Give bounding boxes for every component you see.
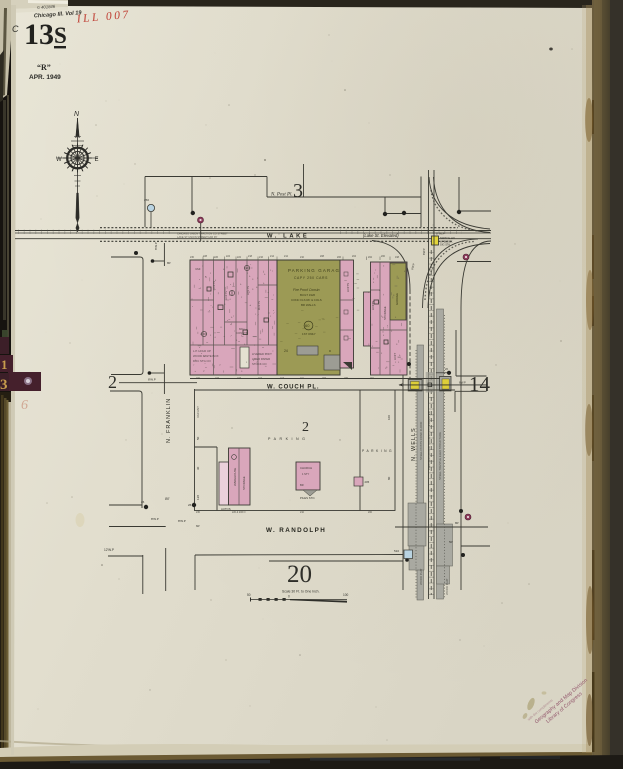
svg-text:206: 206	[337, 256, 342, 259]
svg-text:1ST ONLY: 1ST ONLY	[302, 332, 316, 336]
svg-text:2: 2	[302, 420, 309, 435]
svg-text:100: 100	[387, 415, 391, 420]
svg-text:Scale 30 Ft. to One Inch.: Scale 30 Ft. to One Inch.	[282, 590, 320, 594]
svg-text:216: 216	[259, 256, 264, 259]
svg-text:26: 26	[141, 500, 145, 504]
svg-text:8'W.P: 8'W.P	[151, 517, 159, 521]
svg-text:PARKING: PARKING	[268, 437, 308, 441]
svg-text:8'W.P: 8'W.P	[459, 381, 466, 385]
svg-text:14: 14	[469, 372, 491, 396]
svg-text:Fire Proof Constn: Fire Proof Constn	[293, 288, 320, 292]
svg-text:80': 80'	[167, 261, 171, 265]
svg-text:8'W.P: 8'W.P	[154, 242, 158, 250]
svg-text:220 & 206 N: 220 & 206 N	[232, 511, 246, 514]
svg-text:224: 224	[226, 255, 231, 258]
svg-text:204: 204	[352, 255, 357, 258]
svg-text:202: 202	[368, 256, 373, 259]
svg-text:8'W.P: 8'W.P	[178, 519, 186, 523]
svg-text:218: 218	[248, 255, 253, 258]
svg-text:BUILT 1926: BUILT 1926	[300, 293, 316, 297]
svg-text:WOOD PASTE BOX: WOOD PASTE BOX	[193, 354, 219, 358]
svg-text:198: 198	[395, 256, 400, 259]
svg-text:8'W.P: 8'W.P	[148, 378, 156, 382]
svg-text:WOOD PLAT: WOOD PLAT	[445, 578, 449, 595]
svg-text:STOCK CO: STOCK CO	[252, 362, 267, 366]
svg-text:24: 24	[284, 349, 288, 353]
svg-text:60': 60'	[196, 524, 200, 528]
svg-text:2: 2	[108, 372, 117, 392]
svg-text:CONC FLS RF & COLS: CONC FLS RF & COLS	[291, 298, 322, 302]
svg-text:8'W.P: 8'W.P	[422, 248, 426, 255]
svg-text:0: 0	[288, 595, 290, 599]
svg-text:STORAGE: STORAGE	[242, 476, 246, 490]
svg-text:80: 80	[387, 476, 391, 480]
svg-text:200: 200	[381, 255, 386, 258]
svg-text:APR. 1949: APR. 1949	[29, 74, 61, 81]
svg-text:BR: BR	[300, 483, 304, 487]
svg-text:230: 230	[196, 511, 201, 514]
svg-text:12'W.P: 12'W.P	[104, 548, 114, 552]
svg-text:PARKING: PARKING	[362, 449, 394, 453]
svg-text:230: 230	[190, 256, 195, 259]
svg-text:W. RANDOLPH: W. RANDOLPH	[266, 527, 326, 534]
svg-text:N. Post Pl.: N. Post Pl.	[270, 193, 293, 198]
svg-text:3: 3	[0, 377, 8, 393]
svg-text:205: 205	[365, 480, 370, 484]
svg-text:SIG STA: SIG STA	[440, 243, 450, 247]
svg-text:N. FRANKLIN: N. FRANKLIN	[166, 398, 172, 443]
svg-text:200: 200	[368, 511, 373, 514]
svg-text:1 STY: 1 STY	[302, 472, 309, 476]
svg-text:60: 60	[305, 323, 310, 328]
svg-text:STEEL POSTS CONC FLOOR: STEEL POSTS CONC FLOOR	[419, 422, 423, 460]
svg-text:LOFTS: LOFTS	[224, 291, 228, 300]
svg-text:WOOD PLAT: WOOD PLAT	[419, 568, 423, 585]
svg-text:510: 510	[394, 549, 399, 553]
svg-text:AUTOS: AUTOS	[221, 507, 231, 511]
svg-text:C: C	[12, 24, 19, 34]
svg-text:20: 20	[287, 561, 312, 588]
svg-text:222: 222	[237, 256, 242, 259]
svg-text:PILES STO.: PILES STO.	[300, 496, 315, 500]
svg-text:LOFTS: LOFTS	[257, 301, 261, 310]
svg-text:GARAGE: GARAGE	[395, 293, 399, 305]
svg-text:LOFTS: LOFTS	[346, 283, 350, 292]
svg-text:50: 50	[196, 436, 200, 440]
svg-text:AMER PAPER: AMER PAPER	[252, 357, 270, 361]
svg-text:PARKING GARAGE: PARKING GARAGE	[288, 268, 344, 273]
svg-text:CHICAGO RAPID TRANSIT CO E: CHICAGO RAPID TRANSIT CO ELEVATED	[427, 410, 431, 470]
svg-text:50: 50	[247, 593, 251, 597]
svg-text:CHURCH: CHURCH	[300, 466, 312, 470]
svg-text:214: 214	[270, 255, 275, 258]
svg-text:1: 1	[1, 357, 8, 372]
svg-text:STORAGE: STORAGE	[383, 306, 387, 320]
svg-text:228: 228	[203, 255, 208, 258]
svg-text:250: 250	[144, 198, 149, 202]
svg-text:30: 30	[196, 466, 200, 470]
svg-text:LOFT: LOFT	[393, 353, 397, 360]
svg-text:212: 212	[284, 255, 289, 258]
svg-text:WAREHOUSE: WAREHOUSE	[233, 468, 237, 486]
svg-text:3: 3	[293, 180, 303, 202]
svg-text:80': 80'	[165, 497, 170, 501]
svg-text:BR WALLS: BR WALLS	[301, 303, 316, 307]
svg-text:26: 26	[188, 503, 192, 507]
svg-text:210: 210	[300, 256, 305, 259]
svg-text:80': 80'	[455, 521, 459, 525]
svg-text:50': 50'	[449, 540, 453, 544]
svg-text:W. LAKE: W. LAKE	[267, 234, 309, 240]
svg-text:VACANT: VACANT	[196, 406, 200, 418]
svg-text:6: 6	[21, 398, 28, 413]
svg-text:STEEL TRESTLE ELEV STRUCTURE: STEEL TRESTLE ELEV STRUCTURE	[438, 432, 442, 480]
svg-text:128: 128	[196, 495, 200, 500]
svg-text:8' W.P: 8' W.P	[436, 232, 445, 236]
svg-text:(Lake St. Elevated): (Lake St. Elevated)	[363, 233, 399, 238]
svg-text:“R”: “R”	[37, 63, 51, 72]
svg-text:210: 210	[300, 511, 305, 514]
svg-text:226: 226	[214, 256, 219, 259]
svg-text:VAC: VAC	[195, 267, 201, 271]
svg-text:LAKE ST UNION STREETCAR RY: LAKE ST UNION STREETCAR RY	[177, 235, 218, 239]
svg-text:N. WELLS: N. WELLS	[411, 427, 417, 461]
svg-text:CAPY 250 CARS: CAPY 250 CARS	[294, 276, 328, 280]
svg-text:208: 208	[320, 255, 325, 258]
svg-text:LIVERED LOFT: LIVERED LOFT	[252, 352, 272, 356]
svg-text:100: 100	[343, 593, 349, 597]
